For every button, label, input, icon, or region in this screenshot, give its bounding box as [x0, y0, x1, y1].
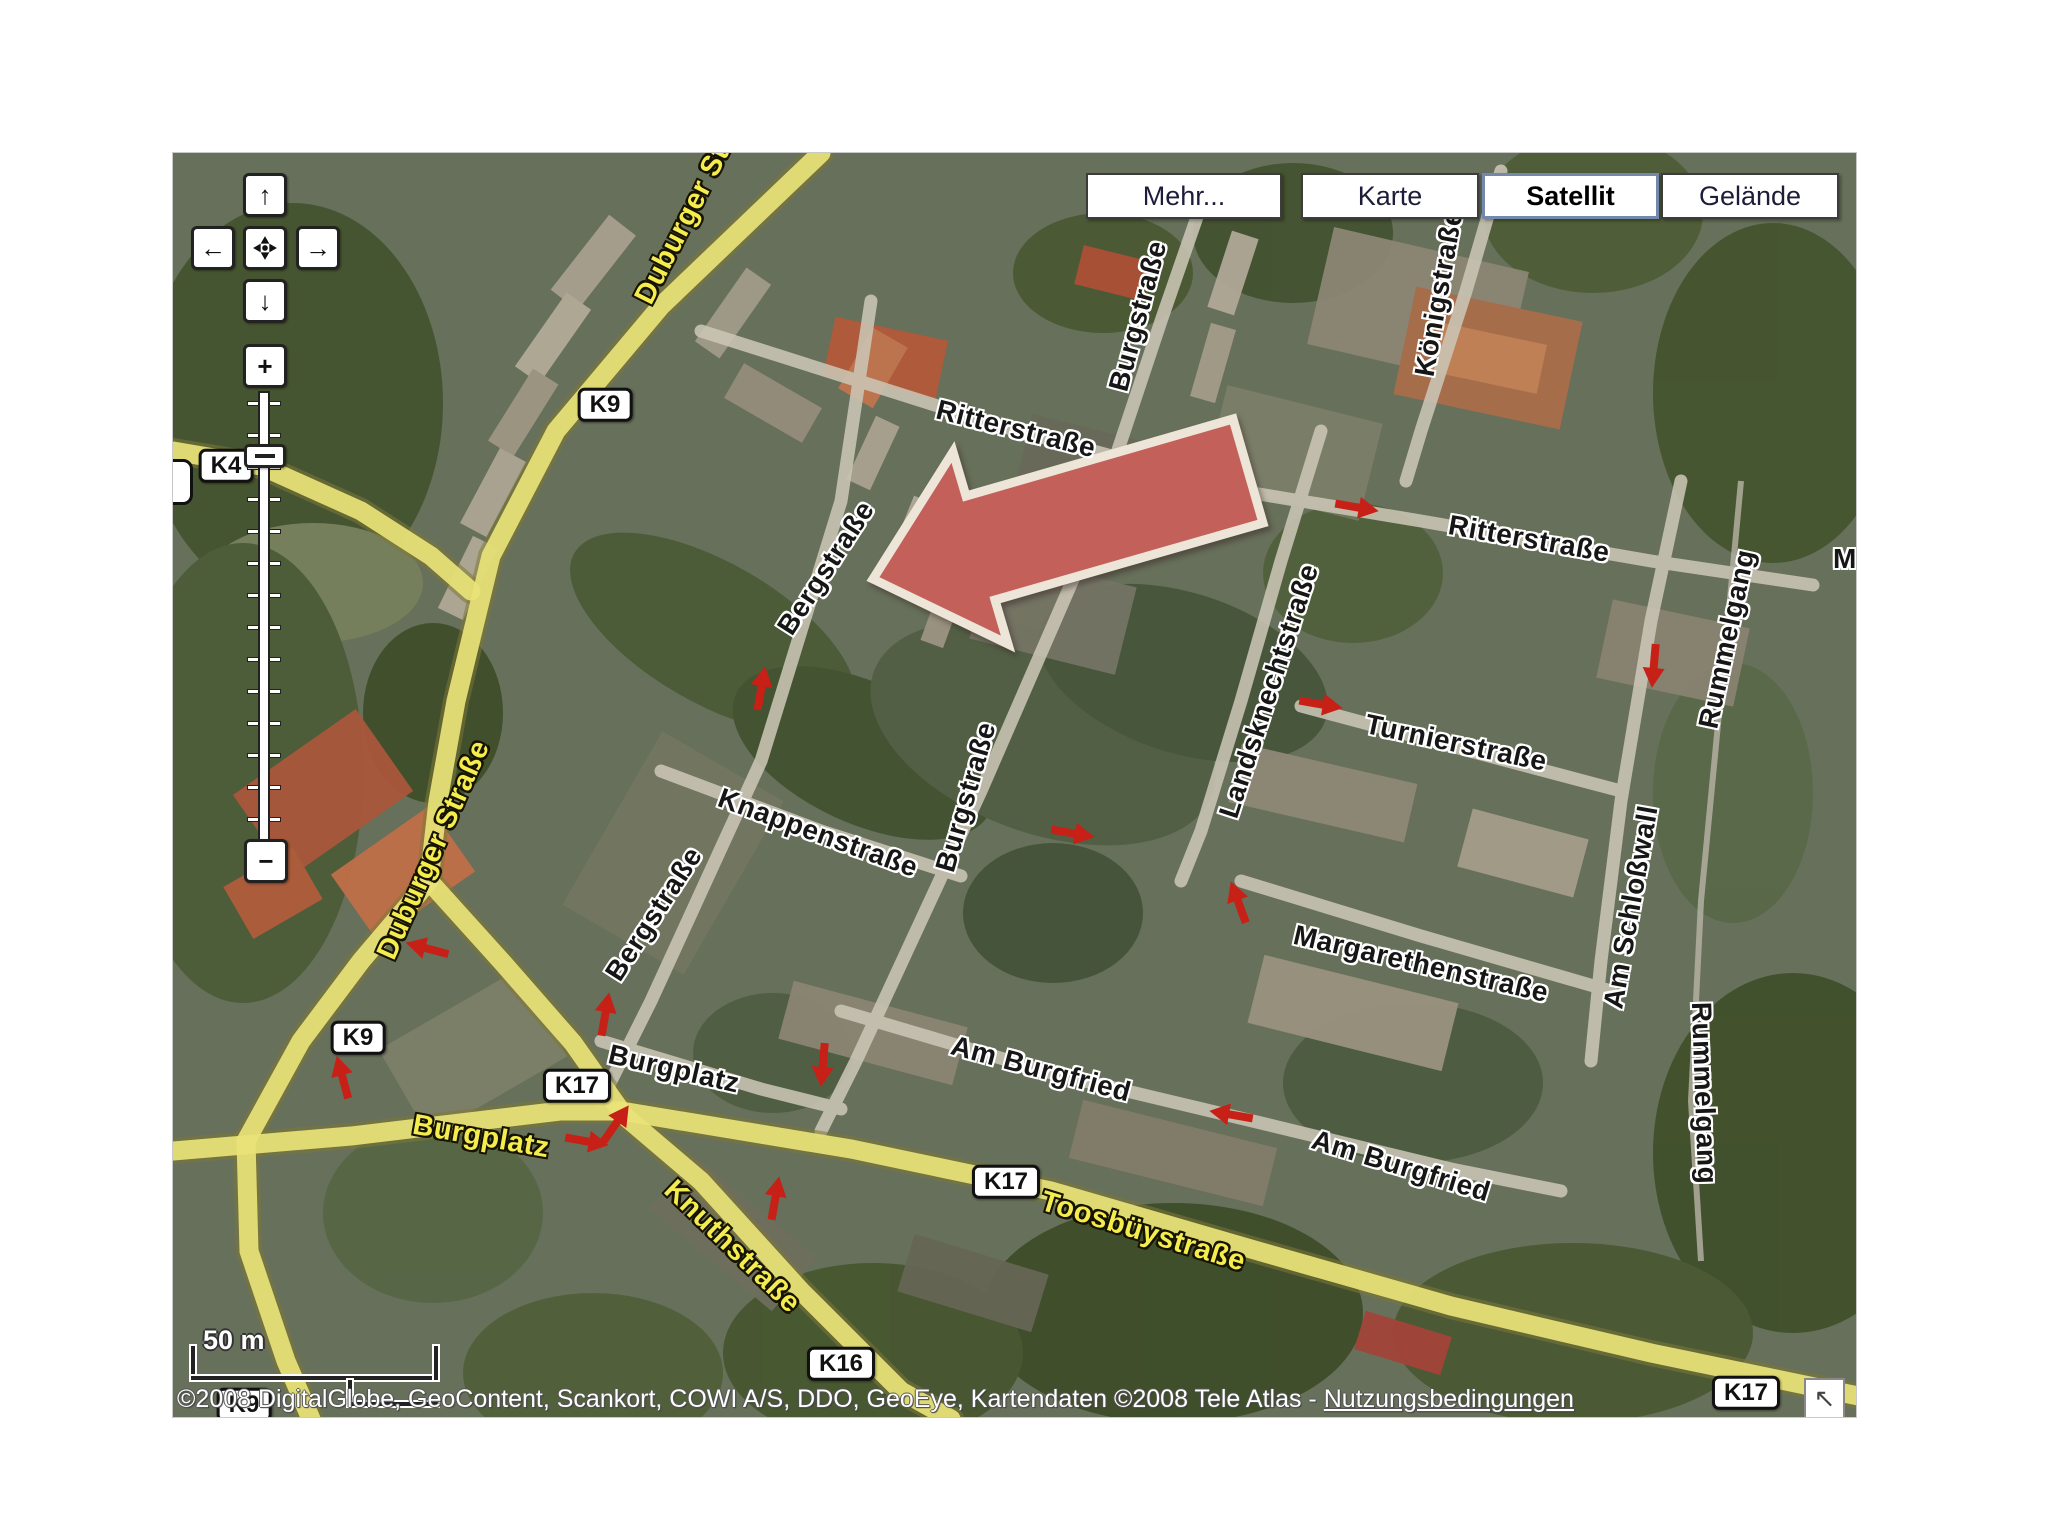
zoom-in-button[interactable]: + — [243, 344, 287, 388]
pan-home-icon — [252, 235, 278, 261]
scale-bar-line — [191, 1376, 438, 1380]
map-viewport[interactable]: Duburger StraßeDuburger StraßeBurgplatzK… — [172, 152, 1857, 1418]
road-badge-k17-burgplatz: K17 — [543, 1069, 611, 1103]
big-red-arrow-annotation — [873, 419, 1263, 644]
layer-button-gelaende[interactable]: Gelände — [1661, 173, 1839, 219]
scale-bar-left-tick — [191, 1346, 195, 1380]
pan-center-button[interactable] — [243, 226, 287, 270]
road-badge-k9-north: K9 — [578, 388, 633, 422]
oneway-arrow-icon — [1207, 1100, 1254, 1129]
pan-left-button[interactable]: ← — [191, 226, 235, 270]
oneway-arrow-icon — [1220, 878, 1256, 927]
road-badge-k17-southeast: K17 — [1712, 1376, 1780, 1410]
oneway-arrow-icon — [810, 1042, 836, 1088]
road-badge-k16: K16 — [807, 1347, 875, 1381]
oneway-arrow-icon — [403, 932, 451, 965]
annotation-overlay — [173, 153, 1857, 1418]
oneway-arrow-icon — [591, 990, 620, 1037]
terms-link[interactable]: Nutzungsbedingungen — [1324, 1385, 1574, 1413]
layer-button-mehr[interactable]: Mehr... — [1086, 173, 1282, 219]
copyright-text: ©2008 DigitalGlobe, GeoContent, Scankort… — [177, 1385, 1324, 1413]
corner-arrow-button[interactable]: ↖ — [1804, 1378, 1845, 1418]
layer-button-satellit[interactable]: Satellit — [1482, 173, 1659, 219]
scale-bar-label: 50 m — [203, 1325, 265, 1356]
road-badge-k17-toosbuy: K17 — [972, 1165, 1040, 1199]
road-badge-k9-mid: K9 — [331, 1021, 386, 1055]
copyright-bar: ©2008 DigitalGlobe, GeoContent, Scankort… — [177, 1385, 1574, 1414]
route-badge-fragment — [172, 459, 193, 505]
oneway-arrow-icon — [1297, 690, 1344, 719]
zoom-out-button[interactable]: − — [244, 839, 288, 883]
northwest-arrow-icon: ↖ — [1814, 1383, 1836, 1414]
scale-bar-right-tick — [434, 1346, 438, 1380]
oneway-arrow-icon — [747, 664, 776, 711]
layer-button-karte[interactable]: Karte — [1301, 173, 1479, 219]
pan-down-button[interactable]: ↓ — [243, 279, 287, 323]
oneway-arrow-icon — [563, 1127, 610, 1156]
oneway-arrow-icon — [1333, 493, 1380, 522]
oneway-arrow-icon — [761, 1174, 790, 1221]
oneway-arrow-icon — [1641, 643, 1667, 689]
oneway-arrow-icon — [1049, 819, 1096, 848]
pan-right-button[interactable]: → — [296, 226, 340, 270]
google-maps-page: Duburger StraßeDuburger StraßeBurgplatzK… — [0, 0, 2048, 1538]
oneway-arrow-icon — [326, 1053, 359, 1101]
zoom-slider-thumb[interactable] — [244, 444, 286, 468]
pan-up-button[interactable]: ↑ — [243, 173, 287, 217]
